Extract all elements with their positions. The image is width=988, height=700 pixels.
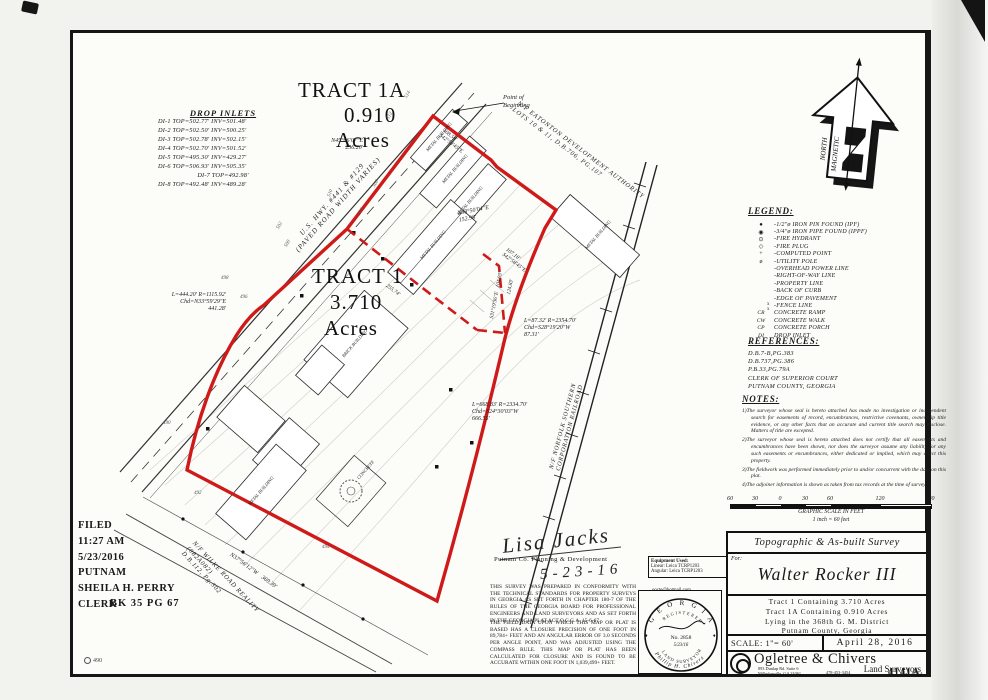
reference-line: CLERK OF SUPERIOR COURT: [748, 375, 928, 383]
reference-line: P.B.33,PG.79A: [748, 366, 928, 374]
scale-label: SCALE: 1"= 60': [728, 636, 824, 650]
notes-title: NOTES:: [742, 394, 946, 404]
legend-item-label: -PROPERTY LINE: [774, 281, 823, 287]
utility-pole-icon: ø: [748, 259, 774, 265]
contour-label: 496: [240, 295, 248, 301]
drop-inlet-row: DI-3 TOP=502.78' INV=502.15': [158, 136, 288, 145]
seal-date: 5/23/16: [674, 643, 689, 648]
scale-tick: 0: [779, 496, 782, 502]
surveyor-seal: G E O R G I A REGISTERED No. 2858 5/23/1…: [639, 591, 723, 675]
survey-date: April 28, 2016: [824, 636, 926, 650]
curve3-dist: 666.55': [472, 416, 527, 423]
legend-title: LEGEND:: [748, 206, 934, 216]
legend-item-label: -BACK OF CURB: [774, 288, 821, 294]
drop-inlet-row: DI-5 TOP=495.30' INV=429.27': [158, 154, 288, 163]
tract-description: Putnam County, Georgia: [728, 626, 926, 636]
svg-text:REGISTERED: REGISTERED: [661, 610, 704, 625]
scale-ratio: 1 inch = 60 feet: [730, 517, 932, 525]
notes-panel: NOTES: 1)The surveyor whose seal is here…: [742, 394, 946, 491]
stamp-ring-icon: [84, 657, 91, 664]
tract-description: Tract 1A Containing 0.910 Acres: [728, 607, 926, 617]
filed-line: FILED: [78, 518, 175, 534]
bearing-hwy-1a: N45°06'07"E: [315, 138, 363, 145]
tract-1-unit: Acres: [324, 316, 378, 341]
legend-item-label: -COMPUTED POINT: [774, 251, 831, 257]
certification-paragraph-1: THIS SURVEY WAS PREPARED IN CONFORMITY W…: [490, 584, 636, 624]
survey-type: Topographic & As-built Survey: [728, 533, 926, 554]
reference-line: D.B.7-B,PG.383: [748, 350, 928, 358]
tract-description: Lying in the 368th G. M. District: [728, 617, 926, 627]
reference-line: D.B.737,PG.386: [748, 358, 928, 366]
note-item: 3)The fieldwork was performed immediatel…: [742, 467, 946, 481]
scan-blot: [21, 0, 39, 14]
drop-inlet-row: DI-6 TOP=506.93' INV=505.35': [158, 163, 288, 172]
legend-item-label: CONCRETE PORCH: [774, 325, 830, 331]
contour-label: 492: [194, 491, 202, 497]
curve2-chd: Chd=S28°19'20"W: [524, 325, 576, 332]
note-item: 2)The surveyor whose seal is hereto atta…: [742, 437, 946, 464]
scale-tick: 60: [827, 496, 833, 502]
scale-caption: GRAPHIC SCALE IN FEET: [730, 509, 932, 517]
legend-item-label: CONCRETE RAMP: [774, 310, 826, 316]
scale-tick: 30: [752, 496, 758, 502]
surveyor-seal-box: G E O R G I A REGISTERED No. 2858 5/23/1…: [638, 590, 722, 674]
filed-line: 5/23/2016: [78, 550, 175, 566]
filed-line: PUTNAM: [78, 565, 175, 581]
seal-ornament: ♦: [645, 634, 648, 639]
for-label: For:: [731, 556, 742, 562]
filed-line: SHEILA H. PERRY: [78, 581, 175, 597]
title-block: Topographic & As-built Survey For: Walte…: [726, 531, 926, 674]
bearing-hwy-1a-dist: 256.20': [315, 145, 363, 152]
client-name: Walter Rocker III: [758, 564, 897, 585]
corner-stamp: 490: [84, 657, 102, 664]
fire-plug-icon: ◇: [748, 243, 774, 250]
scale-tick: 30: [802, 496, 808, 502]
graphic-scale: 60 30 0 30 60 120 180 GRAPHIC SCALE IN F…: [730, 496, 932, 524]
references-title: REFERENCES:: [748, 336, 928, 346]
drop-inlet-row: DI-7 TOP=492.98': [158, 172, 288, 181]
book-page-stamp: BK 35 PG 67: [110, 598, 180, 609]
legend-item-label: -FENCE LINE: [774, 303, 812, 309]
legend-item-label: -3/4"ø IRON PIPE FOUND (IPPF): [774, 229, 867, 235]
computed-point-icon: +: [748, 251, 774, 257]
drop-inlet-row: DI-2 TOP=502.50' INV=500.25': [158, 127, 288, 136]
tract-description: Tract 1 Containing 3.710 Acres: [728, 597, 926, 607]
contour-label: 490: [163, 421, 171, 427]
filed-line: 11:27 AM: [78, 534, 175, 550]
concrete-walk-code: CW: [748, 318, 774, 324]
reference-line: PUTNAM COUNTY, GEORGIA: [748, 383, 928, 391]
legend-item-label: -UTILITY POLE: [774, 259, 817, 265]
scale-tick: 120: [876, 496, 885, 502]
curve3-chd: Chd=S24°30'03"W: [472, 409, 527, 416]
drop-inlet-row: DI-4 TOP=502.70' INV=501.52': [158, 145, 288, 154]
references-panel: REFERENCES: D.B.7-B,PG.383 D.B.737,PG.38…: [748, 336, 928, 391]
contour-label: 494: [322, 545, 330, 551]
legend-item-label: -1/2"ø IRON PIN FOUND (IPF): [774, 222, 859, 228]
legend-item-label: -FIRE HYDRANT: [774, 236, 820, 242]
scan-edge-band: [932, 0, 988, 700]
note-item: 1)The surveyor whose seal is hereto atta…: [742, 408, 946, 435]
firm-phone: 478-453-3454: [826, 670, 850, 675]
seal-registered: REGISTERED: [661, 610, 704, 625]
equipment-angular: Angular: Leica TCRP1203: [651, 569, 725, 575]
pob-label-line1: Point of: [503, 94, 530, 102]
legend-item-label: -EDGE OF PAVEMENT: [774, 296, 837, 302]
curve1-dist: 441.28': [118, 306, 226, 313]
note-item: 4)The adjoiner information is shown as t…: [742, 482, 946, 489]
iron-pin-icon: ●: [748, 222, 774, 228]
legend-item-label: -OVERHEAD POWER LINE: [774, 266, 849, 272]
legend-item-label: -FIRE PLUG: [774, 244, 809, 250]
contour-label: 498: [221, 276, 229, 282]
drop-inlet-row: DI-8 TOP=492.48' INV=489.28': [158, 181, 288, 190]
legend-item-label: -RIGHT-OF-WAY LINE: [774, 273, 835, 279]
drop-inlet-row: DI-1 TOP=502.77' INV=501.48': [158, 118, 288, 127]
scale-tick: 60: [727, 496, 733, 502]
sheet-number: 4141A: [888, 667, 920, 678]
legend-panel: LEGEND: ●-1/2"ø IRON PIN FOUND (IPF) ◉-3…: [748, 206, 934, 339]
seal-ornament: ♦: [713, 634, 716, 639]
corner-stamp-text: 490: [93, 658, 102, 664]
seal-number: No. 2858: [671, 635, 692, 641]
scale-tick: 180: [926, 496, 935, 502]
drop-inlets-table: DROP INLETS DI-1 TOP=502.77' INV=501.48'…: [158, 108, 288, 190]
iron-pipe-icon: ◉: [748, 229, 774, 236]
approval-agency: Putnam Co. Planning & Development: [494, 556, 607, 563]
concrete-porch-code: CP: [748, 325, 774, 331]
curve2-dist: 87.31': [524, 332, 576, 339]
tract-1-area: 3.710: [330, 290, 382, 315]
fire-hydrant-icon: ⊙: [748, 236, 774, 243]
firm-address-line2: Milledgeville, GA 31061: [758, 671, 801, 676]
tract-1a-name: TRACT 1A: [298, 78, 405, 103]
ogletree-chivers-logo: [730, 653, 751, 674]
certification-paragraph-2: THE FIELD DATA UPON WHICH THIS MAP OR PL…: [490, 620, 636, 667]
legend-item-label: CONCRETE WALK: [774, 318, 825, 324]
equipment-box: Equipment Used: Linear: Leica TCRP1203 A…: [648, 556, 728, 578]
drop-inlets-title: DROP INLETS: [158, 108, 288, 118]
